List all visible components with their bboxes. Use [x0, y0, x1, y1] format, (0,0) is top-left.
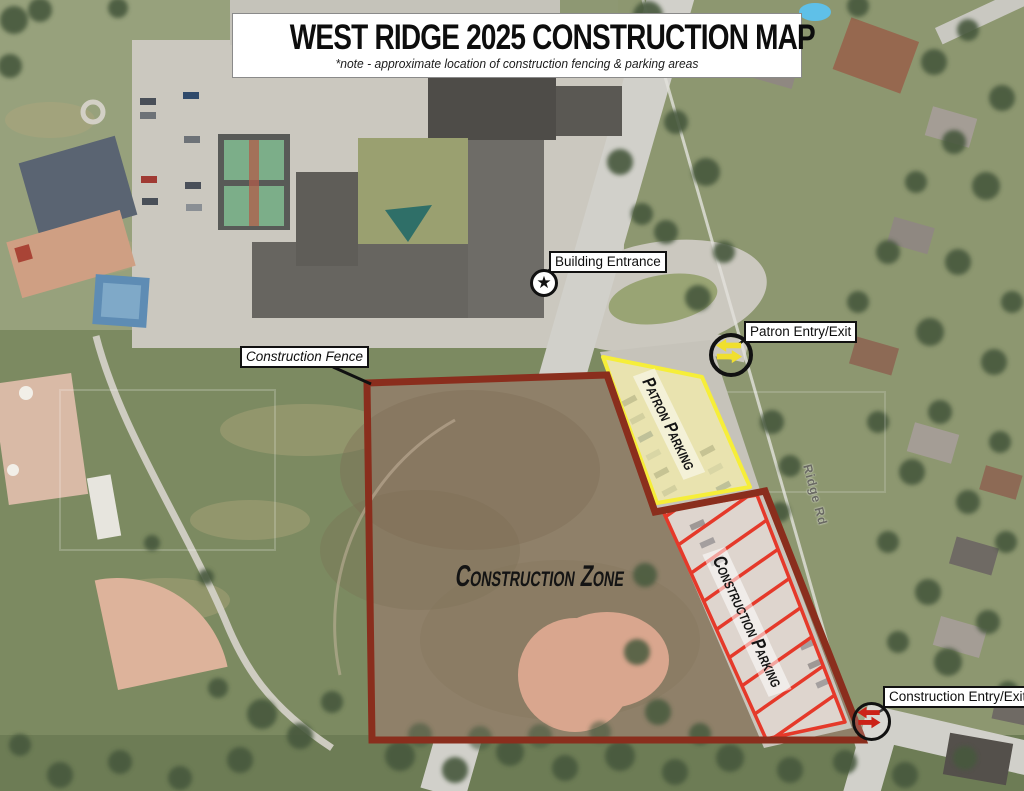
construction-entry-exit-label: Construction Entry/Exit: [883, 686, 1024, 708]
construction-map: Construction Zone Patron Parking Constru…: [0, 0, 1024, 791]
construction-overlay: [0, 0, 1024, 791]
building-entrance-label: Building Entrance: [549, 251, 667, 273]
star-icon: ★: [536, 274, 551, 291]
map-title: WEST RIDGE 2025 CONSTRUCTION MAP: [290, 20, 744, 56]
construction-fence-label: Construction Fence: [240, 346, 369, 368]
map-title-box: WEST RIDGE 2025 CONSTRUCTION MAP *note -…: [232, 13, 802, 78]
patron-entry-exit-label: Patron Entry/Exit: [744, 321, 857, 343]
red-two-way-arrows-icon: [855, 705, 883, 730]
map-title-note: *note - approximate location of construc…: [253, 56, 781, 71]
yellow-two-way-arrows-icon: [713, 337, 745, 365]
fence-label-pointer: [333, 367, 371, 384]
construction-zone-label: Construction Zone: [453, 560, 626, 594]
building-entrance-marker: ★: [530, 269, 558, 297]
